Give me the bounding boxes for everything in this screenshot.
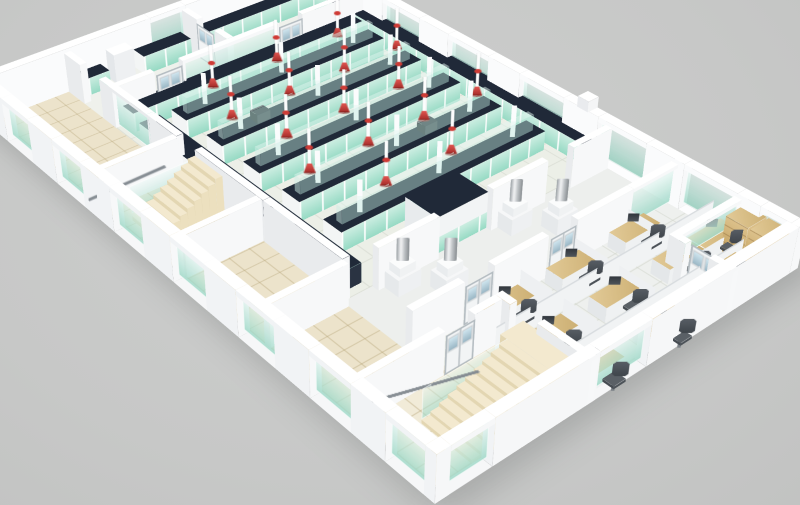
- arm-joint: [227, 92, 235, 96]
- arm-joint: [273, 35, 280, 39]
- arm-joint: [448, 126, 456, 131]
- door-seam: [458, 329, 461, 366]
- arm-joint: [365, 118, 373, 123]
- door-window: [481, 278, 490, 294]
- door-window: [293, 24, 300, 36]
- monitor: [627, 213, 639, 221]
- door-window: [463, 327, 472, 343]
- door-window: [171, 72, 179, 85]
- arm-joint: [341, 45, 348, 49]
- fume-extractor-arm: [415, 77, 433, 125]
- arm-joint: [208, 61, 215, 65]
- scene-scaler: [0, 0, 800, 505]
- fume-vent-chimney: [396, 238, 409, 261]
- office-chair-back: [612, 362, 631, 376]
- door-window: [553, 239, 561, 254]
- fume-vent-chimney: [509, 179, 523, 202]
- arm-joint: [334, 11, 341, 15]
- door-window: [161, 76, 169, 89]
- arm-joint: [305, 145, 313, 150]
- arm-joint: [474, 69, 481, 73]
- fume-extractor-arm: [390, 46, 407, 93]
- arm-joint: [285, 68, 292, 72]
- office-chair-back: [679, 319, 698, 333]
- arm-joint: [395, 62, 402, 66]
- arm-joint: [282, 110, 290, 115]
- door-window: [565, 232, 573, 247]
- arm-joint: [393, 23, 400, 27]
- fume-vent-chimney: [444, 238, 458, 261]
- door-window: [449, 335, 458, 351]
- monitor: [565, 249, 577, 257]
- door-window: [468, 286, 477, 302]
- fume-vent-chimney: [555, 179, 569, 202]
- floorplan-render: Isometric 3D cutaway rendering of a sing…: [0, 0, 800, 505]
- door-window: [200, 30, 206, 43]
- arm-joint: [340, 86, 347, 90]
- monitor: [608, 276, 621, 284]
- door-window: [283, 28, 290, 41]
- fume-extractor-arm: [442, 110, 461, 159]
- arm-joint: [382, 158, 390, 163]
- arm-joint: [421, 93, 428, 97]
